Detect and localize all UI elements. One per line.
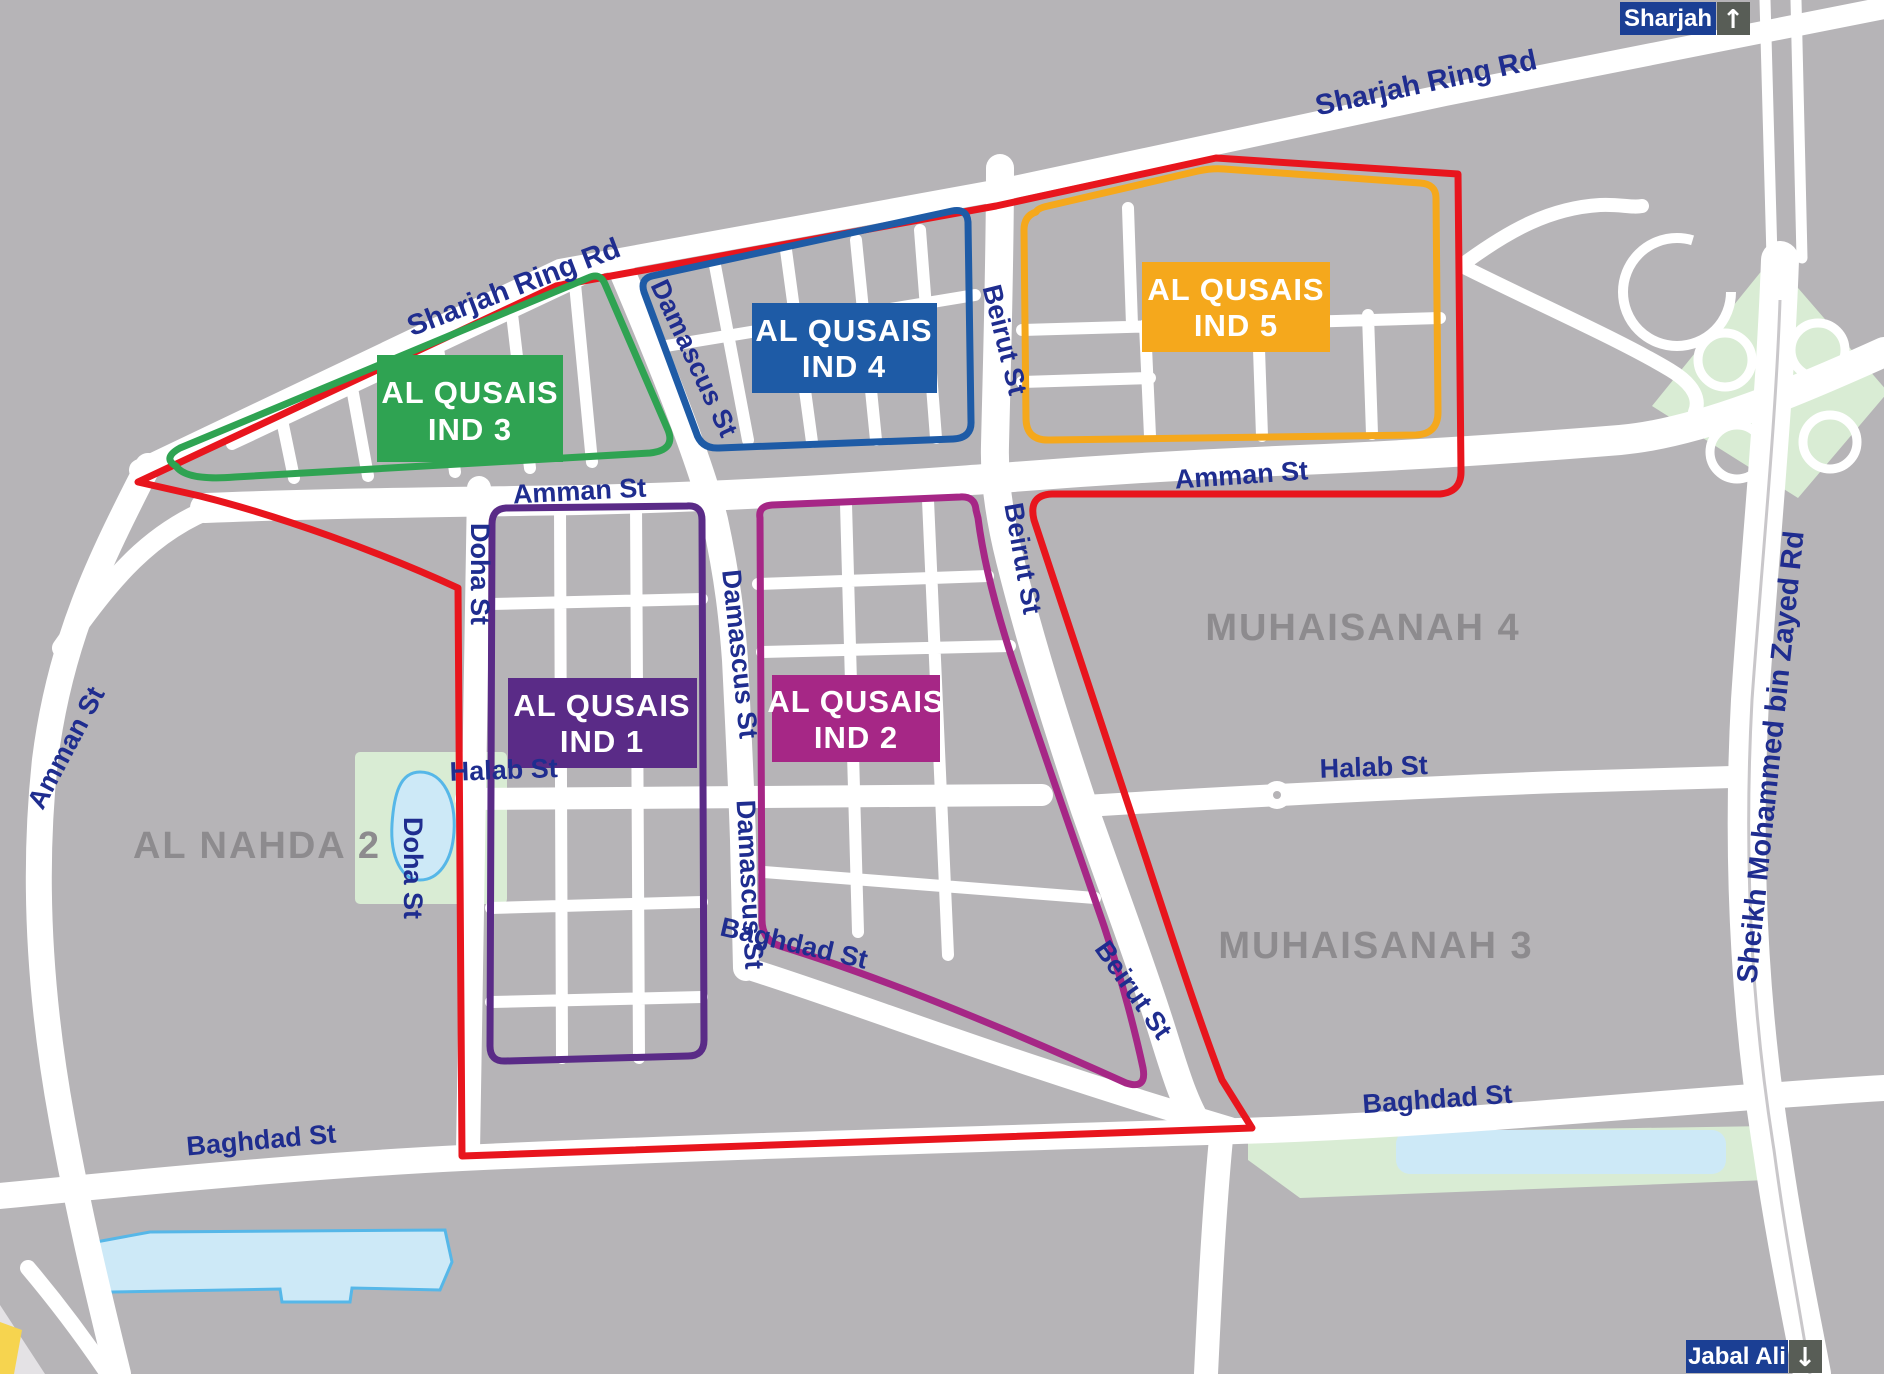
zone-label-ind2: AL QUSAIS IND 2 [767,675,944,762]
badge-jabal-ali[interactable]: Jabal Ali ↓ [1686,1340,1822,1373]
svg-text:AL QUSAIS: AL QUSAIS [767,684,944,719]
up-arrow-icon: ↑ [1722,5,1744,35]
svg-text:AL QUSAIS: AL QUSAIS [1147,272,1324,307]
roundabout-center [1273,791,1281,799]
street-label-doha-2: Doha St [398,817,428,919]
svg-text:IND 3: IND 3 [428,412,512,447]
zone-label-ind3: AL QUSAIS IND 3 [377,355,563,462]
road-halab-west [466,795,1042,799]
area-label-al-nahda2: AL NAHDA 2 [133,825,381,867]
road-beirut-south [1206,1128,1222,1374]
svg-text:IND 2: IND 2 [814,720,898,755]
pond-baghdad [1396,1130,1726,1174]
street-label-halab-1: Halab St [449,753,558,787]
svg-text:AL QUSAIS: AL QUSAIS [513,688,690,723]
svg-text:Sharjah: Sharjah [1624,5,1712,32]
svg-text:IND 1: IND 1 [560,724,644,759]
area-label-muhaisanah3: MUHAISANAH 3 [1218,925,1533,967]
area-label-muhaisanah4: MUHAISANAH 4 [1205,607,1520,649]
zone-label-ind5: AL QUSAIS IND 5 [1142,262,1330,352]
road-smbz-north-2 [1796,0,1802,258]
down-arrow-icon: ↓ [1794,1343,1816,1373]
badge-sharjah[interactable]: Sharjah ↑ [1620,2,1750,35]
svg-text:Jabal Ali: Jabal Ali [1688,1343,1786,1370]
zone-label-ind4: AL QUSAIS IND 4 [752,303,937,393]
svg-text:IND 5: IND 5 [1194,308,1278,343]
svg-text:IND 4: IND 4 [802,349,886,384]
svg-text:AL QUSAIS: AL QUSAIS [381,375,558,410]
road-smbz-north-1 [1765,0,1772,258]
map-canvas: AL QUSAIS IND 3 AL QUSAIS IND 4 AL QUSAI… [0,0,1884,1374]
street-label-doha-1: Doha St [465,523,495,625]
street-label-halab-2: Halab St [1319,750,1428,784]
svg-text:AL QUSAIS: AL QUSAIS [755,313,932,348]
